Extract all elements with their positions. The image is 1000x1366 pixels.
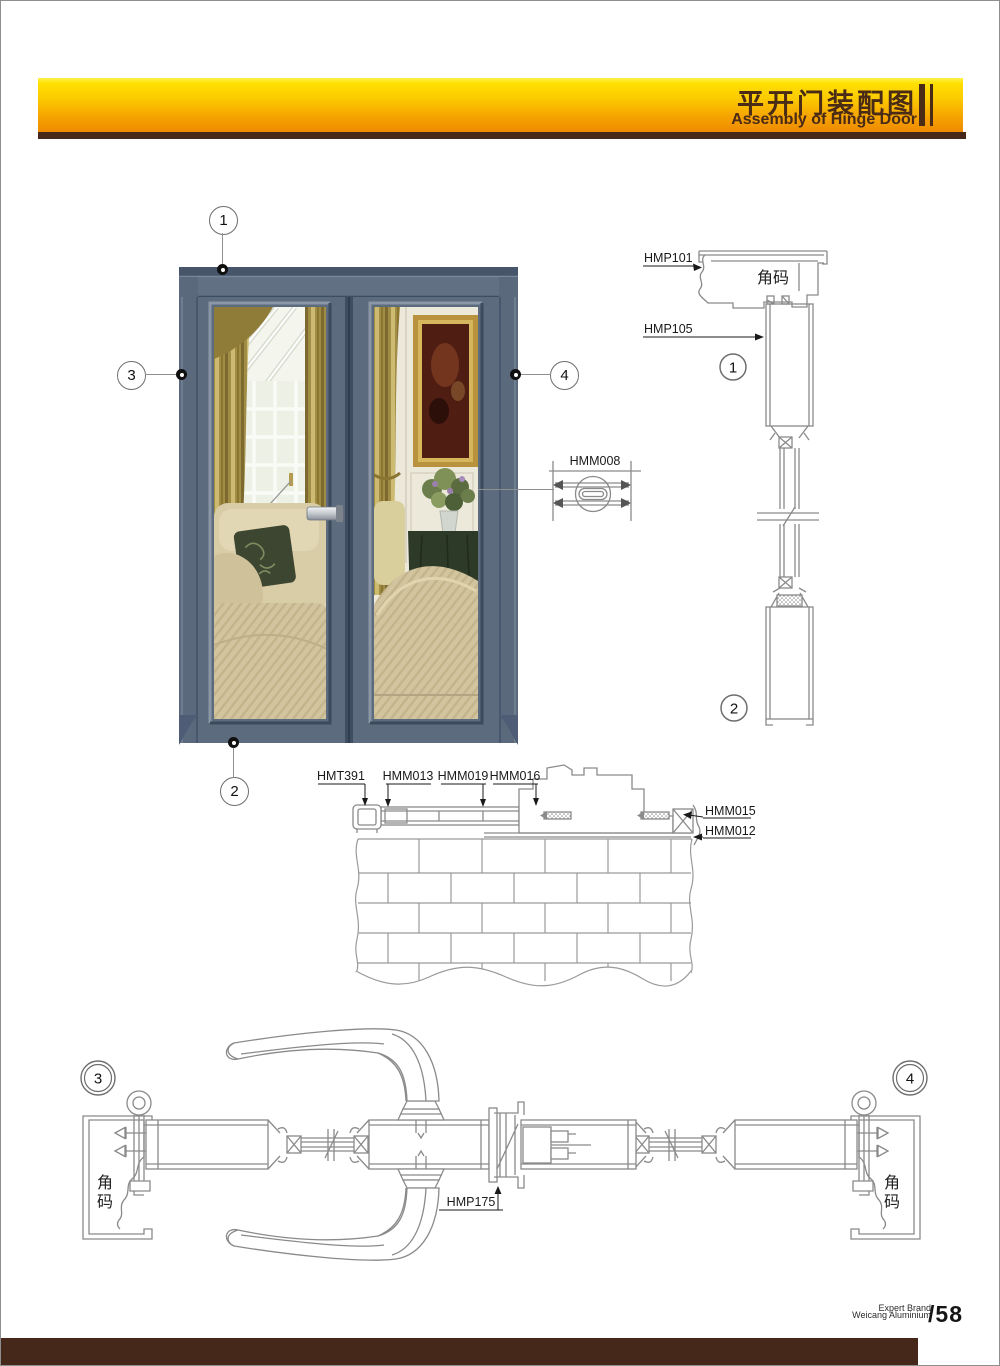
footer-brand-line2: Weicang Aluminium <box>852 1312 931 1319</box>
header-accent-bar-thin <box>930 84 933 126</box>
horizontal-section-drawing: HMP175 3 4 角 码 角 码 <box>66 1021 946 1271</box>
gilded-painting <box>413 315 478 467</box>
door-callout-4-leader <box>519 374 551 375</box>
bottom-rail-profile <box>766 593 813 725</box>
corner-code-label-right: 角 码 <box>884 1174 900 1211</box>
corner-code-label-left: 角 码 <box>97 1174 113 1211</box>
brick-wall <box>356 839 693 996</box>
label-corner-code: 角码 <box>757 269 789 287</box>
svg-text:角: 角 <box>884 1174 900 1192</box>
door-callout-1-number: 1 <box>219 212 227 229</box>
glass-section <box>757 448 819 592</box>
hinge-door-illustration <box>177 263 522 747</box>
right-glass-interior-scene <box>374 307 478 719</box>
door-handle <box>307 505 343 522</box>
label-hmm013: HMM013 <box>383 769 434 783</box>
door-callout-4-dot <box>510 369 521 380</box>
header-accent-bar-thick <box>919 84 925 126</box>
door-callout-3-dot <box>176 369 187 380</box>
door-callout-1-leader <box>222 233 223 266</box>
footer-brown-bar <box>1 1338 918 1366</box>
section-callout-2: 2 <box>721 695 747 721</box>
header-underline-bar <box>38 132 966 139</box>
svg-text:4: 4 <box>906 1071 914 1088</box>
header-gradient-bar: 平开门装配图 Assembly of Hinge Door <box>38 78 963 132</box>
jamb-hinge-assembly <box>83 1091 369 1239</box>
door-callout-2: 2 <box>220 777 249 806</box>
label-hmt391: HMT391 <box>317 769 365 783</box>
label-hmp175: HMP175 <box>447 1195 496 1209</box>
label-hmp105: HMP105 <box>644 322 693 336</box>
door-callout-3: 3 <box>117 361 146 390</box>
label-hmm008: HMM008 <box>570 454 621 468</box>
footer-brand-text: Expert Brand Weicang Aluminium <box>852 1305 931 1319</box>
door-callout-3-leader <box>145 374 179 375</box>
door-callout-2-leader <box>233 748 234 778</box>
svg-text:2: 2 <box>730 701 738 718</box>
label-hmm012: HMM012 <box>705 824 756 838</box>
threshold-section-drawing: HMT391 HMM013 HMM019 HMM016 HMM015 HMM01… <box>301 759 771 996</box>
svg-text:1: 1 <box>729 360 737 377</box>
vertical-section-drawing: HMP101 HMP105 角码 1 2 <box>621 241 871 741</box>
door-callout-4-number: 4 <box>560 367 568 384</box>
svg-text:码: 码 <box>884 1193 900 1211</box>
door-callout-1: 1 <box>209 206 238 235</box>
section-callout-1: 1 <box>720 354 746 380</box>
section-callout-3: 3 <box>81 1061 115 1095</box>
svg-text:3: 3 <box>94 1071 102 1088</box>
svg-text:码: 码 <box>97 1193 113 1211</box>
window-handle <box>289 473 293 486</box>
footer-page-number: /58 <box>928 1301 963 1328</box>
svg-text:角: 角 <box>97 1174 113 1192</box>
door-stile-profile <box>766 304 813 448</box>
label-hmp101: HMP101 <box>644 251 693 265</box>
catalog-page: 平开门装配图 Assembly of Hinge Door <box>0 0 1000 1366</box>
label-hmm016: HMM016 <box>490 769 541 783</box>
page-title-english: Assembly of Hinge Door <box>731 111 917 129</box>
door-callout-4: 4 <box>550 361 579 390</box>
label-hmm019: HMM019 <box>438 769 489 783</box>
label-hmm015: HMM015 <box>705 804 756 818</box>
door-callout-2-dot <box>228 737 239 748</box>
door-callout-2-number: 2 <box>230 783 238 800</box>
door-callout-3-number: 3 <box>127 367 135 384</box>
door-callout-1-dot <box>217 264 228 275</box>
section-callout-4: 4 <box>893 1061 927 1095</box>
